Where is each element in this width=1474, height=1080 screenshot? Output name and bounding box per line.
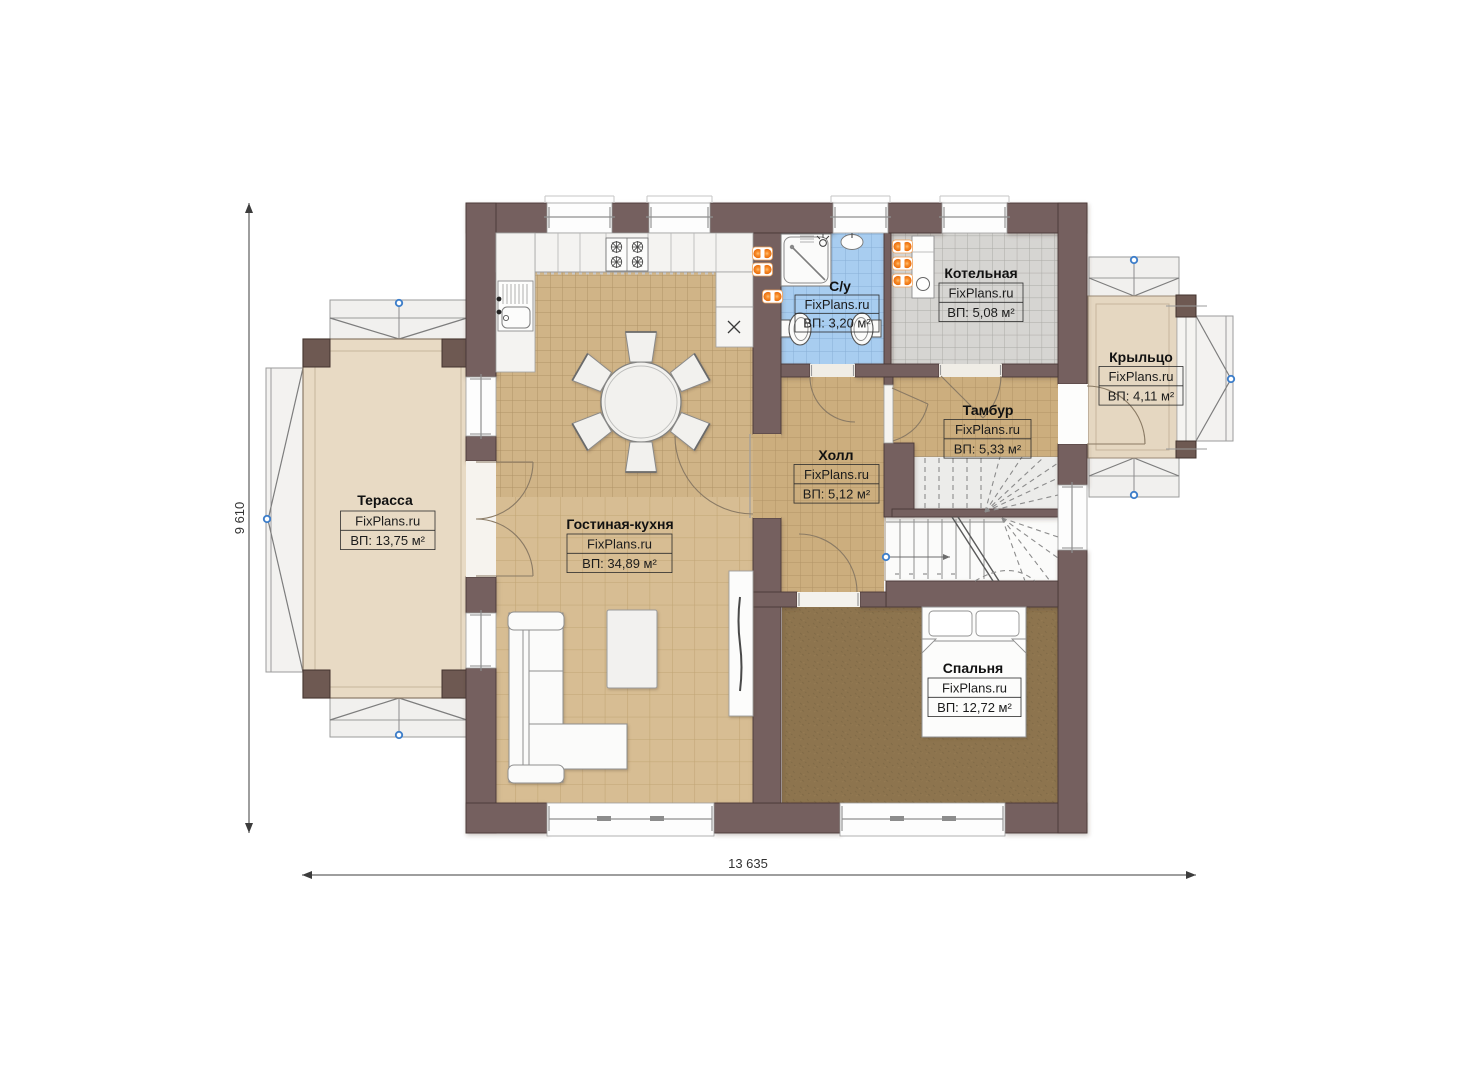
svg-text:Терасса: Терасса (357, 492, 413, 508)
svg-text:ВП: 12,72 м²: ВП: 12,72 м² (937, 700, 1012, 715)
svg-text:ВП: 34,89 м²: ВП: 34,89 м² (582, 556, 657, 571)
svg-text:Крыльцо: Крыльцо (1109, 349, 1173, 365)
svg-text:FixPlans.ru: FixPlans.ru (1108, 369, 1173, 384)
svg-text:С/у: С/у (829, 278, 851, 294)
svg-text:ВП: 3,20 м²: ВП: 3,20 м² (803, 316, 871, 331)
svg-text:FixPlans.ru: FixPlans.ru (587, 537, 652, 552)
svg-text:ВП: 5,12 м²: ВП: 5,12 м² (803, 486, 871, 501)
svg-text:ВП: 5,33 м²: ВП: 5,33 м² (954, 441, 1022, 456)
svg-text:ВП: 13,75 м²: ВП: 13,75 м² (350, 533, 425, 548)
svg-text:FixPlans.ru: FixPlans.ru (955, 422, 1020, 437)
svg-text:FixPlans.ru: FixPlans.ru (804, 297, 869, 312)
svg-text:9 610: 9 610 (232, 502, 247, 535)
svg-text:Котельная: Котельная (944, 265, 1017, 281)
svg-text:FixPlans.ru: FixPlans.ru (942, 681, 1007, 696)
svg-text:FixPlans.ru: FixPlans.ru (948, 286, 1013, 301)
svg-text:13 635: 13 635 (728, 856, 768, 871)
svg-text:Гостиная-кухня: Гостиная-кухня (566, 516, 673, 532)
svg-text:FixPlans.ru: FixPlans.ru (804, 467, 869, 482)
svg-text:FixPlans.ru: FixPlans.ru (355, 514, 420, 529)
svg-text:ВП: 5,08 м²: ВП: 5,08 м² (947, 305, 1015, 320)
svg-text:ВП: 4,11 м²: ВП: 4,11 м² (1108, 388, 1175, 403)
svg-text:Тамбур: Тамбур (963, 402, 1014, 418)
svg-text:Спальня: Спальня (943, 660, 1003, 676)
svg-text:Холл: Холл (818, 447, 853, 463)
